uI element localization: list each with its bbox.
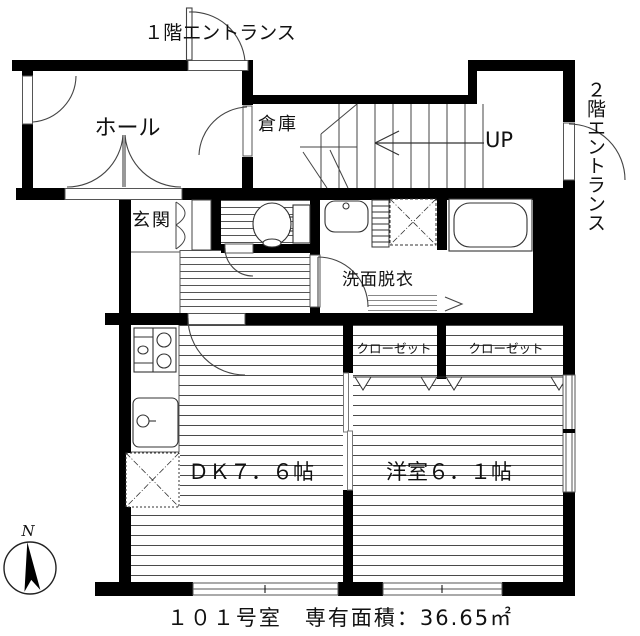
wall xyxy=(242,157,253,188)
corridor-floor xyxy=(180,250,313,313)
western-room-floor xyxy=(353,325,567,582)
stairs-up-arrow xyxy=(375,131,484,155)
washbasin xyxy=(325,201,368,232)
sliding-door xyxy=(344,373,353,490)
wall xyxy=(221,244,225,253)
toilet-floor xyxy=(221,200,310,247)
shelf-unit xyxy=(372,200,389,247)
dining-kitchen-label: ＤＫ７．６帖 xyxy=(188,456,338,486)
wall xyxy=(437,313,446,379)
wall xyxy=(247,95,477,104)
wall xyxy=(563,313,575,375)
wall xyxy=(533,197,575,313)
staircase xyxy=(300,104,483,188)
wall xyxy=(310,197,320,255)
entrance-2f-label: ２階エントランス xyxy=(582,80,609,255)
wall xyxy=(338,582,383,596)
wall xyxy=(119,193,131,582)
window-western-room xyxy=(383,583,502,595)
entrance-1f-label: １階エントランス xyxy=(120,18,320,45)
washroom-label: 洗面脱衣 xyxy=(342,265,454,290)
floor-plan: １階エントランス ２階エントランス ホール 倉庫 UP 玄関 洗面脱衣 クローゼ… xyxy=(0,0,640,636)
wall xyxy=(468,60,477,104)
wall xyxy=(563,71,575,122)
wall xyxy=(12,60,188,71)
washing-machine-pan xyxy=(390,199,436,245)
refrigerator-space xyxy=(125,452,180,508)
wall xyxy=(245,313,575,325)
wall xyxy=(22,124,33,188)
wall xyxy=(105,313,188,325)
western-room-label: 洋室６．１帖 xyxy=(386,456,531,486)
closet-left-label: クローゼット xyxy=(352,338,436,357)
wall xyxy=(95,582,193,596)
wall xyxy=(343,490,353,582)
hall-label: ホール xyxy=(80,110,175,142)
wall xyxy=(253,244,310,253)
wall xyxy=(248,60,253,71)
wall xyxy=(502,582,575,596)
wall xyxy=(437,197,447,250)
kitchen-counter xyxy=(131,325,179,452)
genkan-label: 玄関 xyxy=(132,206,187,232)
genkan-step-line xyxy=(131,250,180,313)
caption: １０１号室 専有面積：36.65㎡ xyxy=(110,602,570,632)
wall xyxy=(563,492,575,596)
washroom-mat xyxy=(368,295,437,312)
compass-north-label: N xyxy=(14,522,42,540)
closet-right-label: クローゼット xyxy=(460,338,552,357)
compass xyxy=(4,541,56,594)
storage-label: 倉庫 xyxy=(258,110,318,136)
bathtub xyxy=(449,199,532,251)
wall xyxy=(22,71,33,77)
wall xyxy=(468,60,575,71)
wall xyxy=(211,200,221,250)
stairs-up-label: UP xyxy=(485,128,525,152)
window-dk xyxy=(193,583,338,595)
wall xyxy=(16,188,65,200)
wall xyxy=(182,188,575,200)
